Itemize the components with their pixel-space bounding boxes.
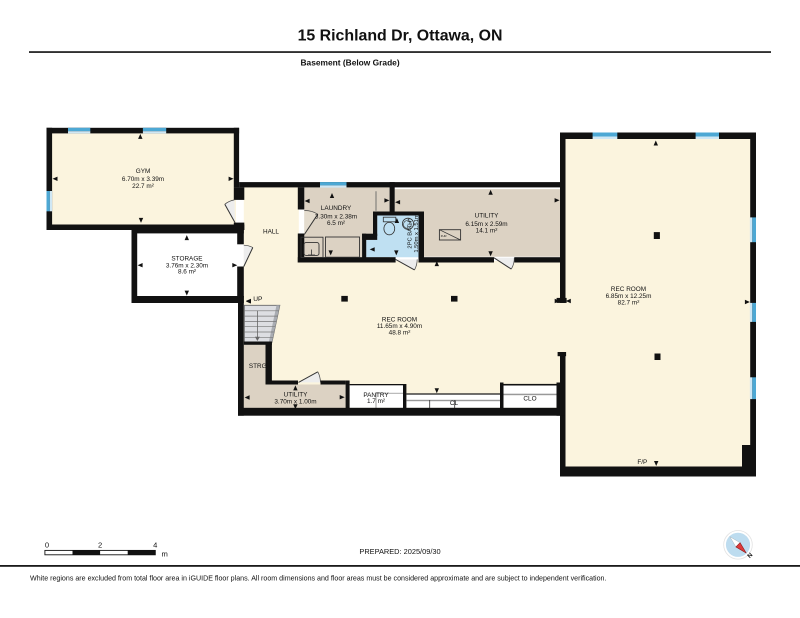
svg-text:6.5 m²: 6.5 m²	[327, 220, 345, 227]
svg-text:CLO: CLO	[523, 395, 536, 402]
svg-text:14.1 m²: 14.1 m²	[476, 227, 498, 234]
svg-text:CL: CL	[450, 400, 459, 407]
svg-text:8.6 m²: 8.6 m²	[178, 269, 196, 276]
svg-text:48.8 m²: 48.8 m²	[389, 329, 411, 336]
svg-text:Basement (Below Grade): Basement (Below Grade)	[301, 58, 400, 68]
svg-text:2PC BATH*: 2PC BATH*	[408, 218, 414, 249]
svg-text:F/P: F/P	[637, 459, 647, 466]
svg-text:LAUNDRY: LAUNDRY	[321, 205, 352, 212]
svg-text:FUR: FUR	[441, 234, 447, 238]
svg-text:STRG: STRG	[249, 363, 267, 370]
svg-text:UTILITY: UTILITY	[284, 392, 309, 399]
svg-text:82.7 m²: 82.7 m²	[618, 299, 640, 306]
svg-text:HALL: HALL	[263, 229, 279, 236]
svg-text:UP: UP	[253, 296, 263, 303]
svg-text:15 Richland Dr, Ottawa, ON: 15 Richland Dr, Ottawa, ON	[298, 28, 503, 45]
svg-text:UTILITY: UTILITY	[475, 213, 500, 220]
svg-text:4: 4	[153, 541, 157, 550]
svg-text:0: 0	[45, 541, 49, 550]
svg-text:GYM: GYM	[136, 168, 151, 175]
svg-text:22.7 m²: 22.7 m²	[132, 183, 154, 190]
svg-text:1.50m x 1.51m: 1.50m x 1.51m	[414, 214, 420, 253]
svg-text:m: m	[162, 550, 168, 559]
svg-text:White regions are excluded fro: White regions are excluded from total fl…	[30, 575, 607, 583]
svg-text:1.7 m²: 1.7 m²	[367, 398, 385, 405]
svg-text:2: 2	[98, 541, 102, 550]
svg-text:PREPARED: 2025/09/30: PREPARED: 2025/09/30	[359, 547, 440, 556]
